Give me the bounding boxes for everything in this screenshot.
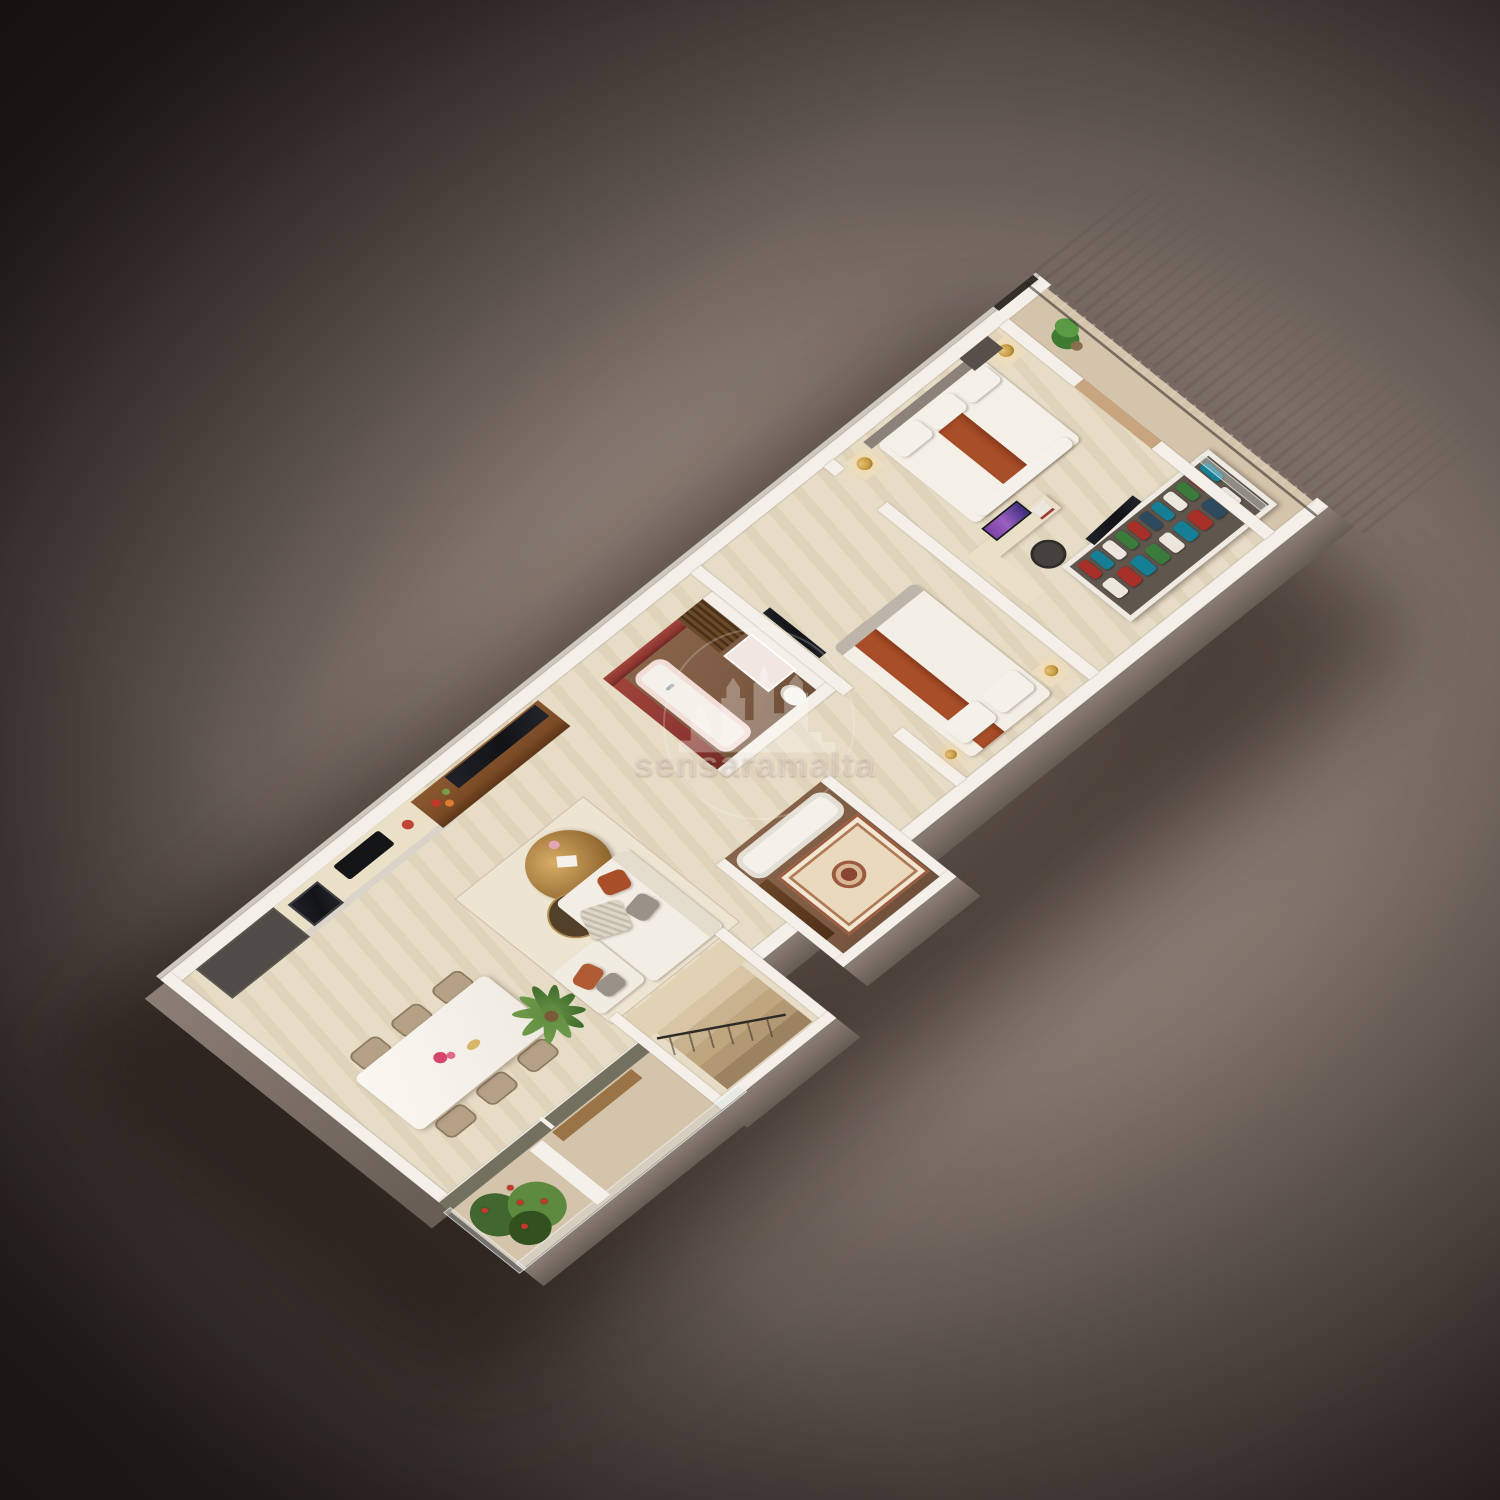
paper-note [556,855,577,868]
render-stage: sensaramalta [0,0,1500,1500]
